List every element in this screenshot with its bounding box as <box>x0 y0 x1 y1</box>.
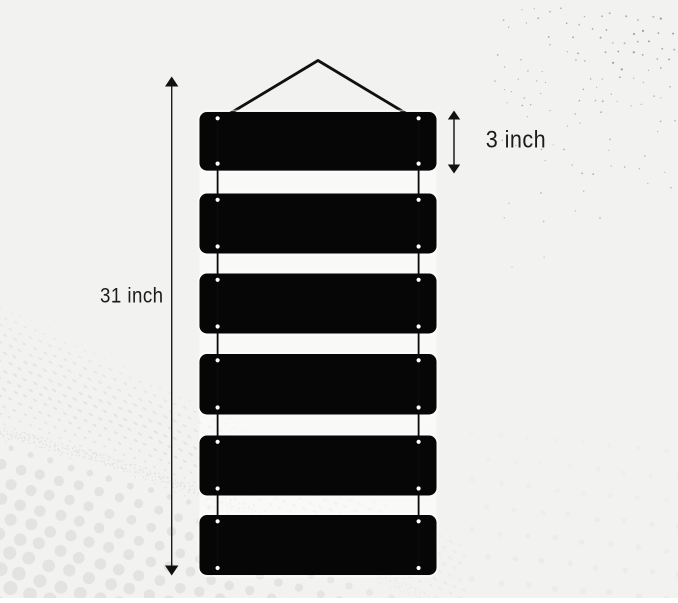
svg-text:31 inch: 31 inch <box>100 285 164 308</box>
svg-text:3 inch: 3 inch <box>486 126 546 153</box>
